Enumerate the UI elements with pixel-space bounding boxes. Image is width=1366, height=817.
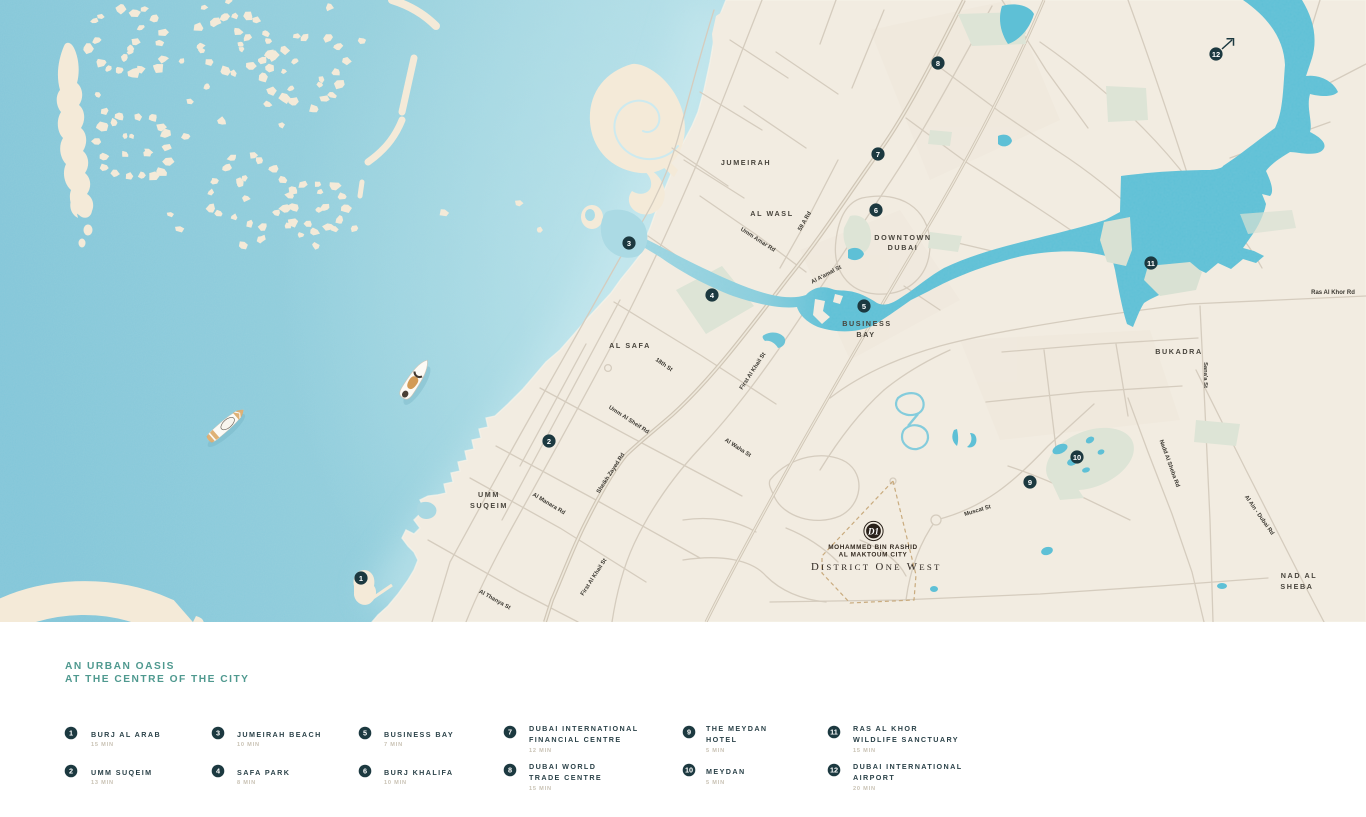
- svg-text:BURJ AL ARAB: BURJ AL ARAB: [91, 730, 161, 739]
- svg-text:2: 2: [69, 767, 73, 776]
- svg-text:7: 7: [876, 150, 880, 159]
- svg-text:RAS AL KHOR: RAS AL KHOR: [853, 724, 918, 733]
- svg-text:MOHAMMED BIN RASHID: MOHAMMED BIN RASHID: [828, 544, 918, 551]
- svg-text:13 MIN: 13 MIN: [91, 780, 114, 786]
- svg-text:9: 9: [1028, 478, 1032, 487]
- svg-text:11: 11: [1147, 259, 1155, 268]
- svg-text:AN URBAN OASIS: AN URBAN OASIS: [65, 661, 175, 672]
- svg-text:JUMEIRAH: JUMEIRAH: [721, 158, 771, 167]
- svg-text:BAY: BAY: [856, 330, 875, 339]
- svg-text:FINANCIAL CENTRE: FINANCIAL CENTRE: [529, 735, 622, 744]
- svg-text:5 MIN: 5 MIN: [706, 748, 725, 754]
- svg-text:5: 5: [363, 729, 367, 738]
- svg-text:12 MIN: 12 MIN: [529, 748, 552, 754]
- svg-text:15 MIN: 15 MIN: [91, 742, 114, 748]
- svg-text:DISTRICT ONE WEST: DISTRICT ONE WEST: [811, 561, 942, 573]
- svg-text:DUBAI INTERNATIONAL: DUBAI INTERNATIONAL: [529, 724, 639, 733]
- svg-text:10 MIN: 10 MIN: [237, 742, 260, 748]
- svg-text:AT THE CENTRE OF THE CITY: AT THE CENTRE OF THE CITY: [65, 674, 249, 685]
- svg-text:Ras Al Khor Rd: Ras Al Khor Rd: [1311, 290, 1355, 296]
- svg-text:8: 8: [936, 59, 940, 68]
- svg-text:7: 7: [508, 728, 512, 737]
- svg-text:15 MIN: 15 MIN: [853, 748, 876, 754]
- svg-text:THE MEYDAN: THE MEYDAN: [706, 724, 768, 733]
- svg-text:AIRPORT: AIRPORT: [853, 773, 895, 782]
- svg-text:12: 12: [1212, 50, 1220, 59]
- svg-text:DUBAI INTERNATIONAL: DUBAI INTERNATIONAL: [853, 762, 963, 771]
- svg-text:6: 6: [874, 206, 878, 215]
- svg-text:AL SAFA: AL SAFA: [609, 341, 651, 350]
- svg-text:20 MIN: 20 MIN: [853, 786, 876, 792]
- svg-text:UMM: UMM: [478, 490, 500, 499]
- svg-text:8: 8: [508, 766, 512, 775]
- svg-text:SHEBA: SHEBA: [1280, 582, 1313, 591]
- svg-text:9: 9: [687, 728, 691, 737]
- svg-text:10 MIN: 10 MIN: [384, 780, 407, 786]
- svg-text:11: 11: [830, 728, 838, 737]
- svg-text:JUMEIRAH BEACH: JUMEIRAH BEACH: [237, 730, 322, 739]
- svg-text:1: 1: [69, 729, 73, 738]
- svg-text:UMM SUQEIM: UMM SUQEIM: [91, 768, 153, 777]
- svg-text:AL WASL: AL WASL: [750, 209, 793, 218]
- svg-text:AL MAKTOUM CITY: AL MAKTOUM CITY: [839, 552, 908, 559]
- svg-text:BUSINESS BAY: BUSINESS BAY: [384, 730, 454, 739]
- svg-text:10: 10: [685, 766, 693, 775]
- svg-text:BUSINESS: BUSINESS: [842, 319, 892, 328]
- svg-text:HOTEL: HOTEL: [706, 735, 737, 744]
- svg-text:5: 5: [862, 302, 866, 311]
- svg-text:MEYDAN: MEYDAN: [706, 767, 746, 776]
- svg-text:SAFA PARK: SAFA PARK: [237, 768, 290, 777]
- svg-text:7 MIN: 7 MIN: [384, 742, 403, 748]
- svg-text:3: 3: [216, 729, 220, 738]
- svg-text:NAD AL: NAD AL: [1281, 571, 1317, 580]
- svg-text:8 MIN: 8 MIN: [237, 780, 256, 786]
- svg-text:WILDLIFE SANCTUARY: WILDLIFE SANCTUARY: [853, 735, 959, 744]
- svg-text:3: 3: [627, 239, 631, 248]
- svg-text:SUQEIM: SUQEIM: [470, 501, 508, 510]
- svg-text:DUBAI WORLD: DUBAI WORLD: [529, 762, 596, 771]
- svg-text:15 MIN: 15 MIN: [529, 786, 552, 792]
- svg-text:TRADE CENTRE: TRADE CENTRE: [529, 773, 602, 782]
- svg-text:BUKADRA: BUKADRA: [1155, 347, 1203, 356]
- svg-text:5 MIN: 5 MIN: [706, 780, 725, 786]
- svg-text:1: 1: [359, 574, 363, 583]
- svg-text:D1: D1: [867, 527, 879, 537]
- svg-text:DUBAI: DUBAI: [888, 243, 919, 252]
- svg-text:2: 2: [547, 437, 551, 446]
- svg-text:6: 6: [363, 767, 367, 776]
- svg-text:10: 10: [1073, 453, 1081, 462]
- svg-text:Sana'a St: Sana'a St: [1202, 362, 1208, 388]
- svg-text:BURJ KHALIFA: BURJ KHALIFA: [384, 768, 454, 777]
- svg-text:DOWNTOWN: DOWNTOWN: [874, 233, 931, 242]
- svg-text:12: 12: [830, 766, 838, 775]
